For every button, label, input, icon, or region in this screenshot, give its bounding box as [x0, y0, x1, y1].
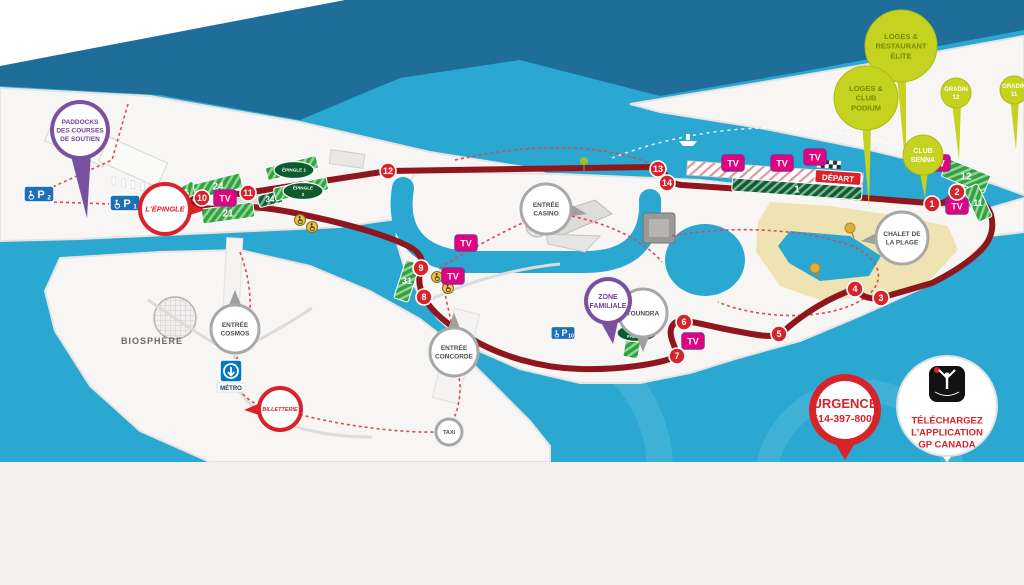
svg-text:TAXI: TAXI	[443, 430, 456, 436]
svg-text:MÉTRO: MÉTRO	[220, 384, 242, 392]
svg-text:ÉPINGLE 1: ÉPINGLE 1	[282, 166, 306, 173]
svg-text:ZONE: ZONE	[598, 294, 618, 301]
svg-text:TÉLÉCHARGEZ: TÉLÉCHARGEZ	[911, 415, 982, 426]
svg-text:13: 13	[653, 164, 663, 174]
svg-text:BILLETTERIE: BILLETTERIE	[262, 407, 298, 413]
svg-text:ENTRÉE: ENTRÉE	[441, 343, 468, 352]
svg-text:P: P	[123, 198, 130, 210]
turn-marker-14: 14	[659, 175, 675, 191]
tv-screen-icon: TV	[682, 333, 704, 349]
grandstand-name-tag: ÉPINGLE2	[283, 183, 323, 200]
grandstand-number: 12	[960, 172, 972, 183]
svg-text:P: P	[37, 189, 44, 201]
svg-text:1: 1	[929, 199, 934, 209]
svg-text:12: 12	[383, 166, 393, 176]
svg-text:12: 12	[953, 95, 960, 101]
biosphere-label: BIOSPHÈRE	[121, 336, 183, 346]
turn-marker-4: 4	[847, 281, 863, 297]
svg-text:L'APPLICATION: L'APPLICATION	[911, 427, 983, 438]
grandstand-number: 11	[973, 198, 983, 208]
svg-text:CONCORDE: CONCORDE	[435, 354, 474, 361]
svg-text:TOUNDRA: TOUNDRA	[627, 310, 660, 317]
svg-text:9: 9	[418, 263, 423, 273]
turn-marker-13: 13	[650, 161, 666, 177]
svg-text:PADDOCKS: PADDOCKS	[62, 119, 99, 126]
svg-text:2: 2	[954, 187, 959, 197]
svg-text:P: P	[562, 328, 568, 338]
gp-canada-circuit-map-page: BIOSPHÈREDÉPART112111524213431ÉPINGLE 1É…	[0, 0, 1024, 585]
parking-p2: P2	[24, 186, 54, 202]
gp-canada-app-icon	[929, 366, 965, 402]
svg-text:11: 11	[1011, 92, 1018, 98]
tv-screen-icon: TV	[442, 268, 464, 284]
svg-text:4: 4	[852, 284, 857, 294]
tv-screen-icon: TV	[771, 155, 793, 171]
tv-screen-icon: TV	[214, 190, 236, 206]
wheelchair-platform-marker	[432, 272, 443, 283]
svg-text:11: 11	[243, 188, 253, 198]
svg-text:14: 14	[662, 178, 672, 188]
taxi-pin: TAXI	[436, 419, 462, 445]
turn-marker-8: 8	[416, 289, 432, 305]
svg-text:TV: TV	[809, 152, 821, 162]
svg-text:CLUB: CLUB	[913, 148, 932, 155]
turn-marker-7: 7	[669, 348, 685, 364]
turn-marker-3: 3	[873, 290, 889, 306]
svg-text:LA PLAGE: LA PLAGE	[886, 240, 919, 247]
svg-text:514-397-8000: 514-397-8000	[812, 413, 878, 425]
tv-screen-icon: TV	[804, 149, 826, 165]
turn-marker-1: 1	[924, 196, 940, 212]
svg-text:ÉLITE: ÉLITE	[890, 51, 911, 60]
turn-marker-11: 11	[240, 185, 256, 201]
svg-text:TV: TV	[951, 201, 963, 211]
svg-text:10: 10	[197, 193, 207, 203]
svg-text:10: 10	[568, 333, 574, 339]
svg-text:1: 1	[133, 204, 137, 211]
wheelchair-platform-marker	[307, 222, 318, 233]
grandstand-number: 31	[402, 276, 412, 286]
svg-text:TV: TV	[219, 193, 231, 203]
svg-text:CLUB: CLUB	[856, 94, 877, 103]
svg-text:CASINO: CASINO	[533, 211, 558, 218]
svg-text:ÉPINGLE: ÉPINGLE	[293, 183, 313, 190]
turn-marker-6: 6	[676, 314, 692, 330]
svg-text:LOGES &: LOGES &	[884, 32, 918, 41]
svg-text:LOGES &: LOGES &	[849, 84, 883, 93]
paddock-stall	[131, 181, 135, 189]
svg-text:TV: TV	[727, 158, 739, 168]
svg-text:DES COURSES: DES COURSES	[56, 127, 104, 134]
turn-marker-2: 2	[949, 184, 965, 200]
paddock-stall	[141, 183, 145, 191]
svg-text:8: 8	[421, 292, 426, 302]
svg-text:TV: TV	[447, 271, 459, 281]
turn-marker-12: 12	[380, 163, 396, 179]
svg-text:TV: TV	[460, 238, 472, 248]
turn-marker-10: 10	[194, 190, 210, 206]
svg-text:SENNA: SENNA	[911, 157, 936, 164]
svg-text:PODIUM: PODIUM	[851, 103, 881, 112]
parking-p1: P1	[110, 195, 140, 211]
svg-text:ENTRÉE: ENTRÉE	[222, 320, 249, 329]
svg-text:FAMILIALE: FAMILIALE	[590, 303, 627, 310]
paddock-stall	[112, 177, 116, 185]
building	[643, 213, 675, 243]
svg-text:2: 2	[47, 195, 51, 202]
parking-p10: P10	[551, 327, 575, 340]
svg-text:RESTAURANT: RESTAURANT	[875, 42, 927, 51]
svg-text:GRADIN: GRADIN	[1002, 84, 1024, 90]
svg-text:L'ÉPINGLE: L'ÉPINGLE	[145, 205, 185, 214]
svg-text:DE SOUTIEN: DE SOUTIEN	[60, 136, 100, 143]
svg-text:TV: TV	[776, 158, 788, 168]
svg-text:7: 7	[674, 351, 679, 361]
boat-icon	[686, 134, 690, 140]
turn-marker-5: 5	[771, 326, 787, 342]
map-legend: # NUMÉRO DE VIRAGE TURNER NUMBER VOIX PI…	[0, 462, 1024, 585]
svg-text:CHALET DE: CHALET DE	[883, 231, 921, 238]
circuit-map: BIOSPHÈREDÉPART112111524213431ÉPINGLE 1É…	[0, 0, 1024, 462]
svg-text:URGENCE: URGENCE	[812, 396, 877, 411]
svg-text:2: 2	[302, 192, 305, 197]
tv-screen-icon: TV	[722, 155, 744, 171]
grandstand-number: 21	[222, 209, 234, 220]
svg-text:3: 3	[878, 293, 883, 303]
wheelchair-platform-marker	[295, 215, 306, 226]
grandstand-number: 1	[794, 185, 800, 196]
canal-basin	[665, 224, 745, 296]
turn-marker-9: 9	[413, 260, 429, 276]
svg-text:GRADIN: GRADIN	[944, 87, 968, 93]
svg-text:6: 6	[681, 317, 686, 327]
svg-text:COSMOS: COSMOS	[221, 331, 251, 338]
tv-screen-icon: TV	[455, 235, 477, 251]
svg-text:ENTRÉE: ENTRÉE	[533, 200, 560, 209]
grandstand-number: 34	[266, 195, 275, 204]
circuit-map-svg: BIOSPHÈREDÉPART112111524213431ÉPINGLE 1É…	[0, 0, 1024, 462]
paddock-stall	[122, 179, 126, 187]
svg-text:GP CANADA: GP CANADA	[918, 439, 975, 450]
grandstand-name-tag: ÉPINGLE 1	[274, 162, 314, 179]
metro-badge: MÉTRO	[217, 360, 245, 392]
svg-text:5: 5	[776, 329, 781, 339]
svg-text:TV: TV	[687, 336, 699, 346]
